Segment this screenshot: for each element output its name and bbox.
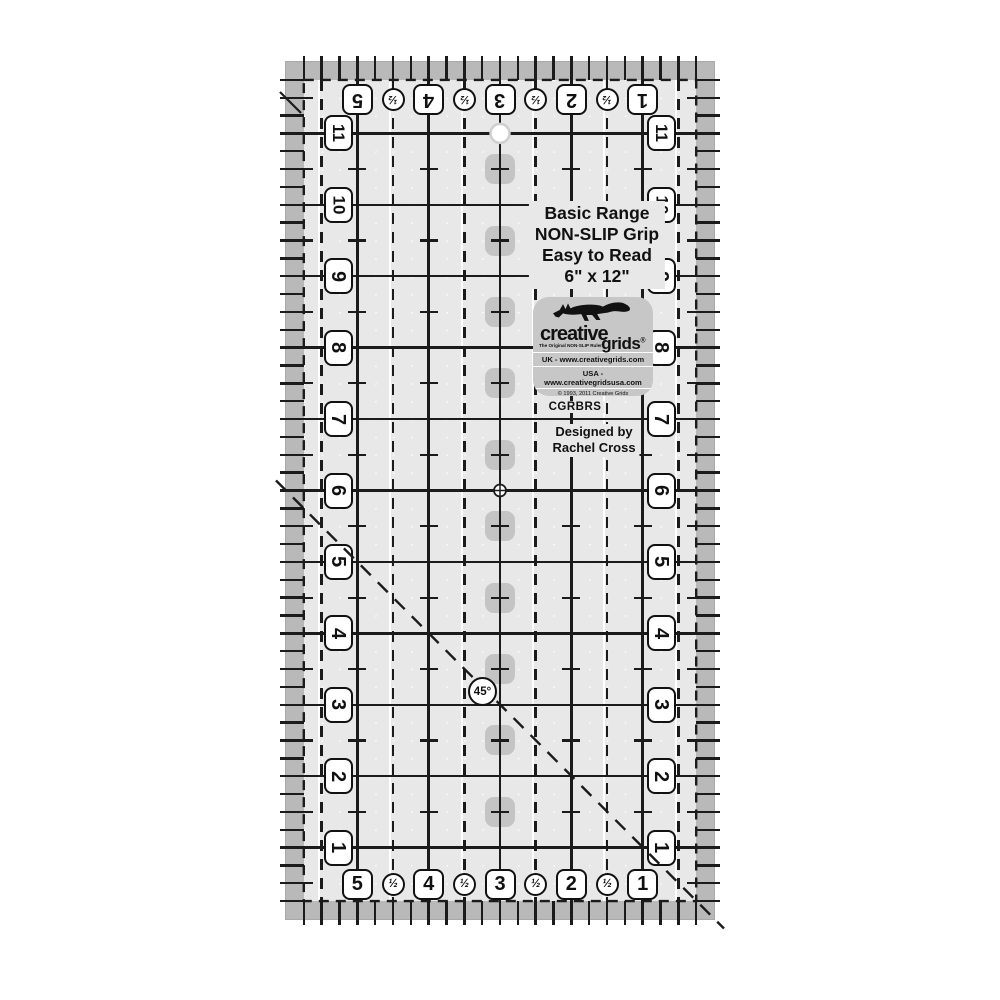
info-line-4: 6" x 12" [535, 266, 659, 287]
center-point-marker [492, 483, 508, 499]
brand-badge: creative grids® The Original NON-SLIP Ru… [533, 297, 653, 396]
diagonal-45-line [276, 481, 724, 929]
hanging-hole [491, 124, 510, 143]
brand-tagline: The Original NON-SLIP Ruler [539, 343, 602, 348]
info-line-1: Basic Range [535, 203, 659, 224]
info-line-2: NON-SLIP Grip [535, 224, 659, 245]
brand-name: creative grids® The Original NON-SLIP Ru… [533, 323, 653, 352]
angle-45-marker: 45° [468, 677, 497, 706]
brand-usa-url: USA - www.creativegridsusa.com [533, 366, 653, 389]
sku-code: CGRBRS [546, 401, 605, 413]
quilting-ruler: 5432154321½½½½½½½½1110987654321111098765… [286, 62, 714, 919]
fox-logo-icon [533, 300, 653, 325]
angle-45-label: 45° [474, 686, 491, 698]
product-photo-canvas: 5432154321½½½½½½½½1110987654321111098765… [0, 0, 1000, 1000]
corner-angle-tick [280, 92, 301, 113]
ruler-markings-overlay [276, 52, 724, 929]
brand-name-bottom: grids® [601, 334, 645, 354]
designer-credit-line1: Designed by [552, 424, 635, 440]
brand-copyright: © 1993, 2011 Creative Grids [533, 388, 653, 396]
brand-uk-url: UK - www.creativegrids.com [533, 352, 653, 366]
designer-credit-line2: Rachel Cross [552, 440, 635, 456]
product-info-text: Basic Range NON-SLIP Grip Easy to Read 6… [529, 201, 665, 289]
designer-credit: Designed by Rachel Cross [548, 424, 639, 457]
info-line-3: Easy to Read [535, 245, 659, 266]
